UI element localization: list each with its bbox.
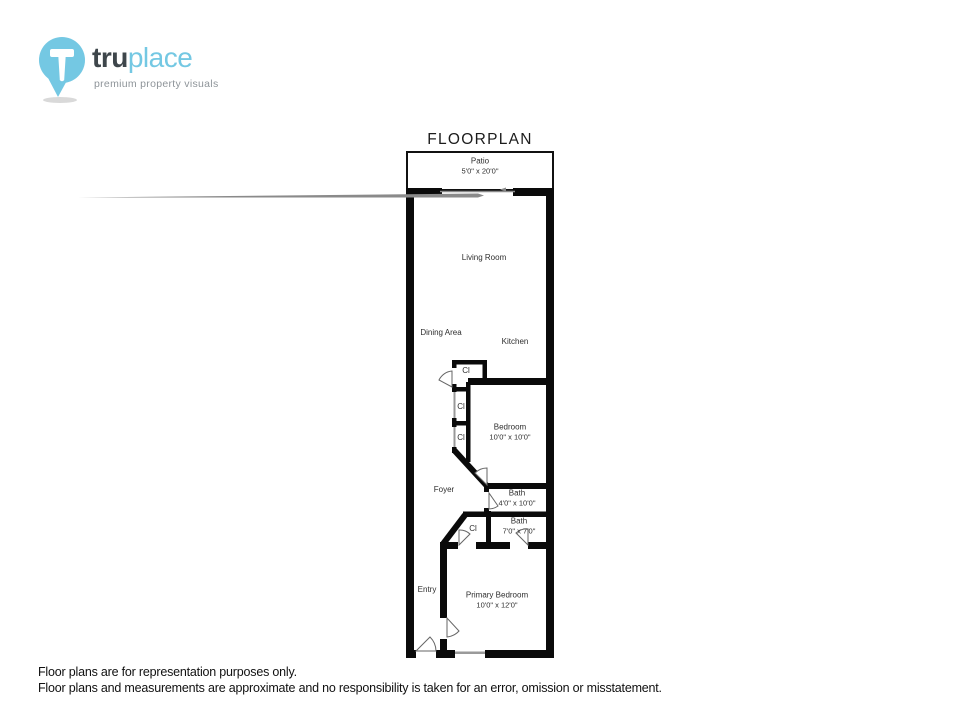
room-dims: 10'0" x 12'0" bbox=[466, 600, 528, 609]
room-name: Cl bbox=[462, 366, 470, 376]
room-label-bath2: Bath 7'0" x 7'0" bbox=[503, 517, 536, 536]
disclaimer-line1: Floor plans are for representation purpo… bbox=[38, 664, 662, 680]
room-name: Foyer bbox=[434, 485, 454, 495]
room-label-closet2: Cl bbox=[457, 402, 465, 412]
room-name: Bath bbox=[503, 517, 536, 527]
room-label-closet4: Cl bbox=[469, 524, 477, 534]
room-name: Primary Bedroom bbox=[466, 591, 528, 601]
room-name: Kitchen bbox=[502, 337, 529, 347]
room-label-primary-bedroom: Primary Bedroom 10'0" x 12'0" bbox=[466, 591, 528, 610]
room-label-foyer: Foyer bbox=[434, 485, 454, 495]
room-label-closet3: Cl bbox=[457, 433, 465, 443]
room-label-bedroom: Bedroom 10'0" x 10'0" bbox=[489, 423, 530, 442]
room-name: Patio bbox=[462, 157, 499, 167]
page: { "logo": { "brand_bold": "tru", "brand_… bbox=[0, 0, 960, 720]
room-dims: 7'0" x 7'0" bbox=[503, 526, 536, 535]
room-label-living-room: Living Room bbox=[462, 253, 506, 263]
disclaimer: Floor plans are for representation purpo… bbox=[38, 664, 662, 696]
disclaimer-line2: Floor plans and measurements are approxi… bbox=[38, 680, 662, 696]
room-label-entry: Entry bbox=[418, 585, 437, 595]
room-label-bath1: Bath 4'0" x 10'0" bbox=[499, 489, 536, 508]
room-name: Living Room bbox=[462, 253, 506, 263]
room-name: Entry bbox=[418, 585, 437, 595]
room-name: Dining Area bbox=[420, 328, 461, 338]
window-glyph bbox=[455, 652, 485, 655]
room-label-closet1: Cl bbox=[462, 366, 470, 376]
room-name: Bath bbox=[499, 489, 536, 499]
room-label-kitchen: Kitchen bbox=[502, 337, 529, 347]
floorplan-drawing bbox=[0, 0, 960, 720]
room-name: Bedroom bbox=[489, 423, 530, 433]
room-label-patio: Patio 5'0" x 20'0" bbox=[462, 157, 499, 176]
room-name: Cl bbox=[457, 433, 465, 443]
room-name: Cl bbox=[457, 402, 465, 412]
room-dims: 5'0" x 20'0" bbox=[462, 166, 499, 175]
room-name: Cl bbox=[469, 524, 477, 534]
room-dims: 10'0" x 10'0" bbox=[489, 432, 530, 441]
room-dims: 4'0" x 10'0" bbox=[499, 498, 536, 507]
room-label-dining-area: Dining Area bbox=[420, 328, 461, 338]
